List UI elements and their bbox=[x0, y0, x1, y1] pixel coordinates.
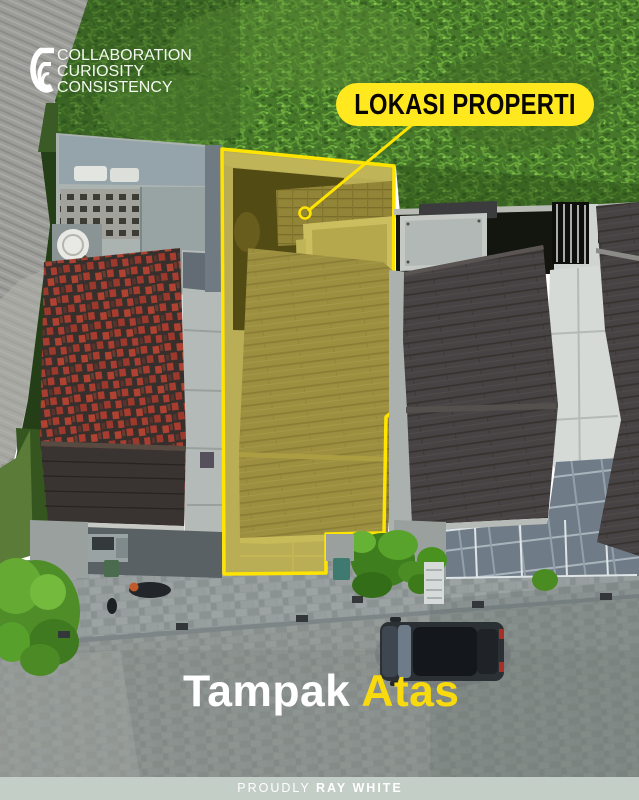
svg-text:Tampak Atas: Tampak Atas bbox=[183, 667, 459, 716]
svg-text:CURIOSITY: CURIOSITY bbox=[57, 63, 144, 80]
svg-text:LOKASI PROPERTI: LOKASI PROPERTI bbox=[354, 88, 576, 121]
svg-text:CONSISTENCY: CONSISTENCY bbox=[57, 79, 173, 96]
svg-text:PROUDLY RAY WHITE: PROUDLY RAY WHITE bbox=[237, 781, 403, 795]
svg-text:COLLABORATION: COLLABORATION bbox=[57, 47, 192, 64]
